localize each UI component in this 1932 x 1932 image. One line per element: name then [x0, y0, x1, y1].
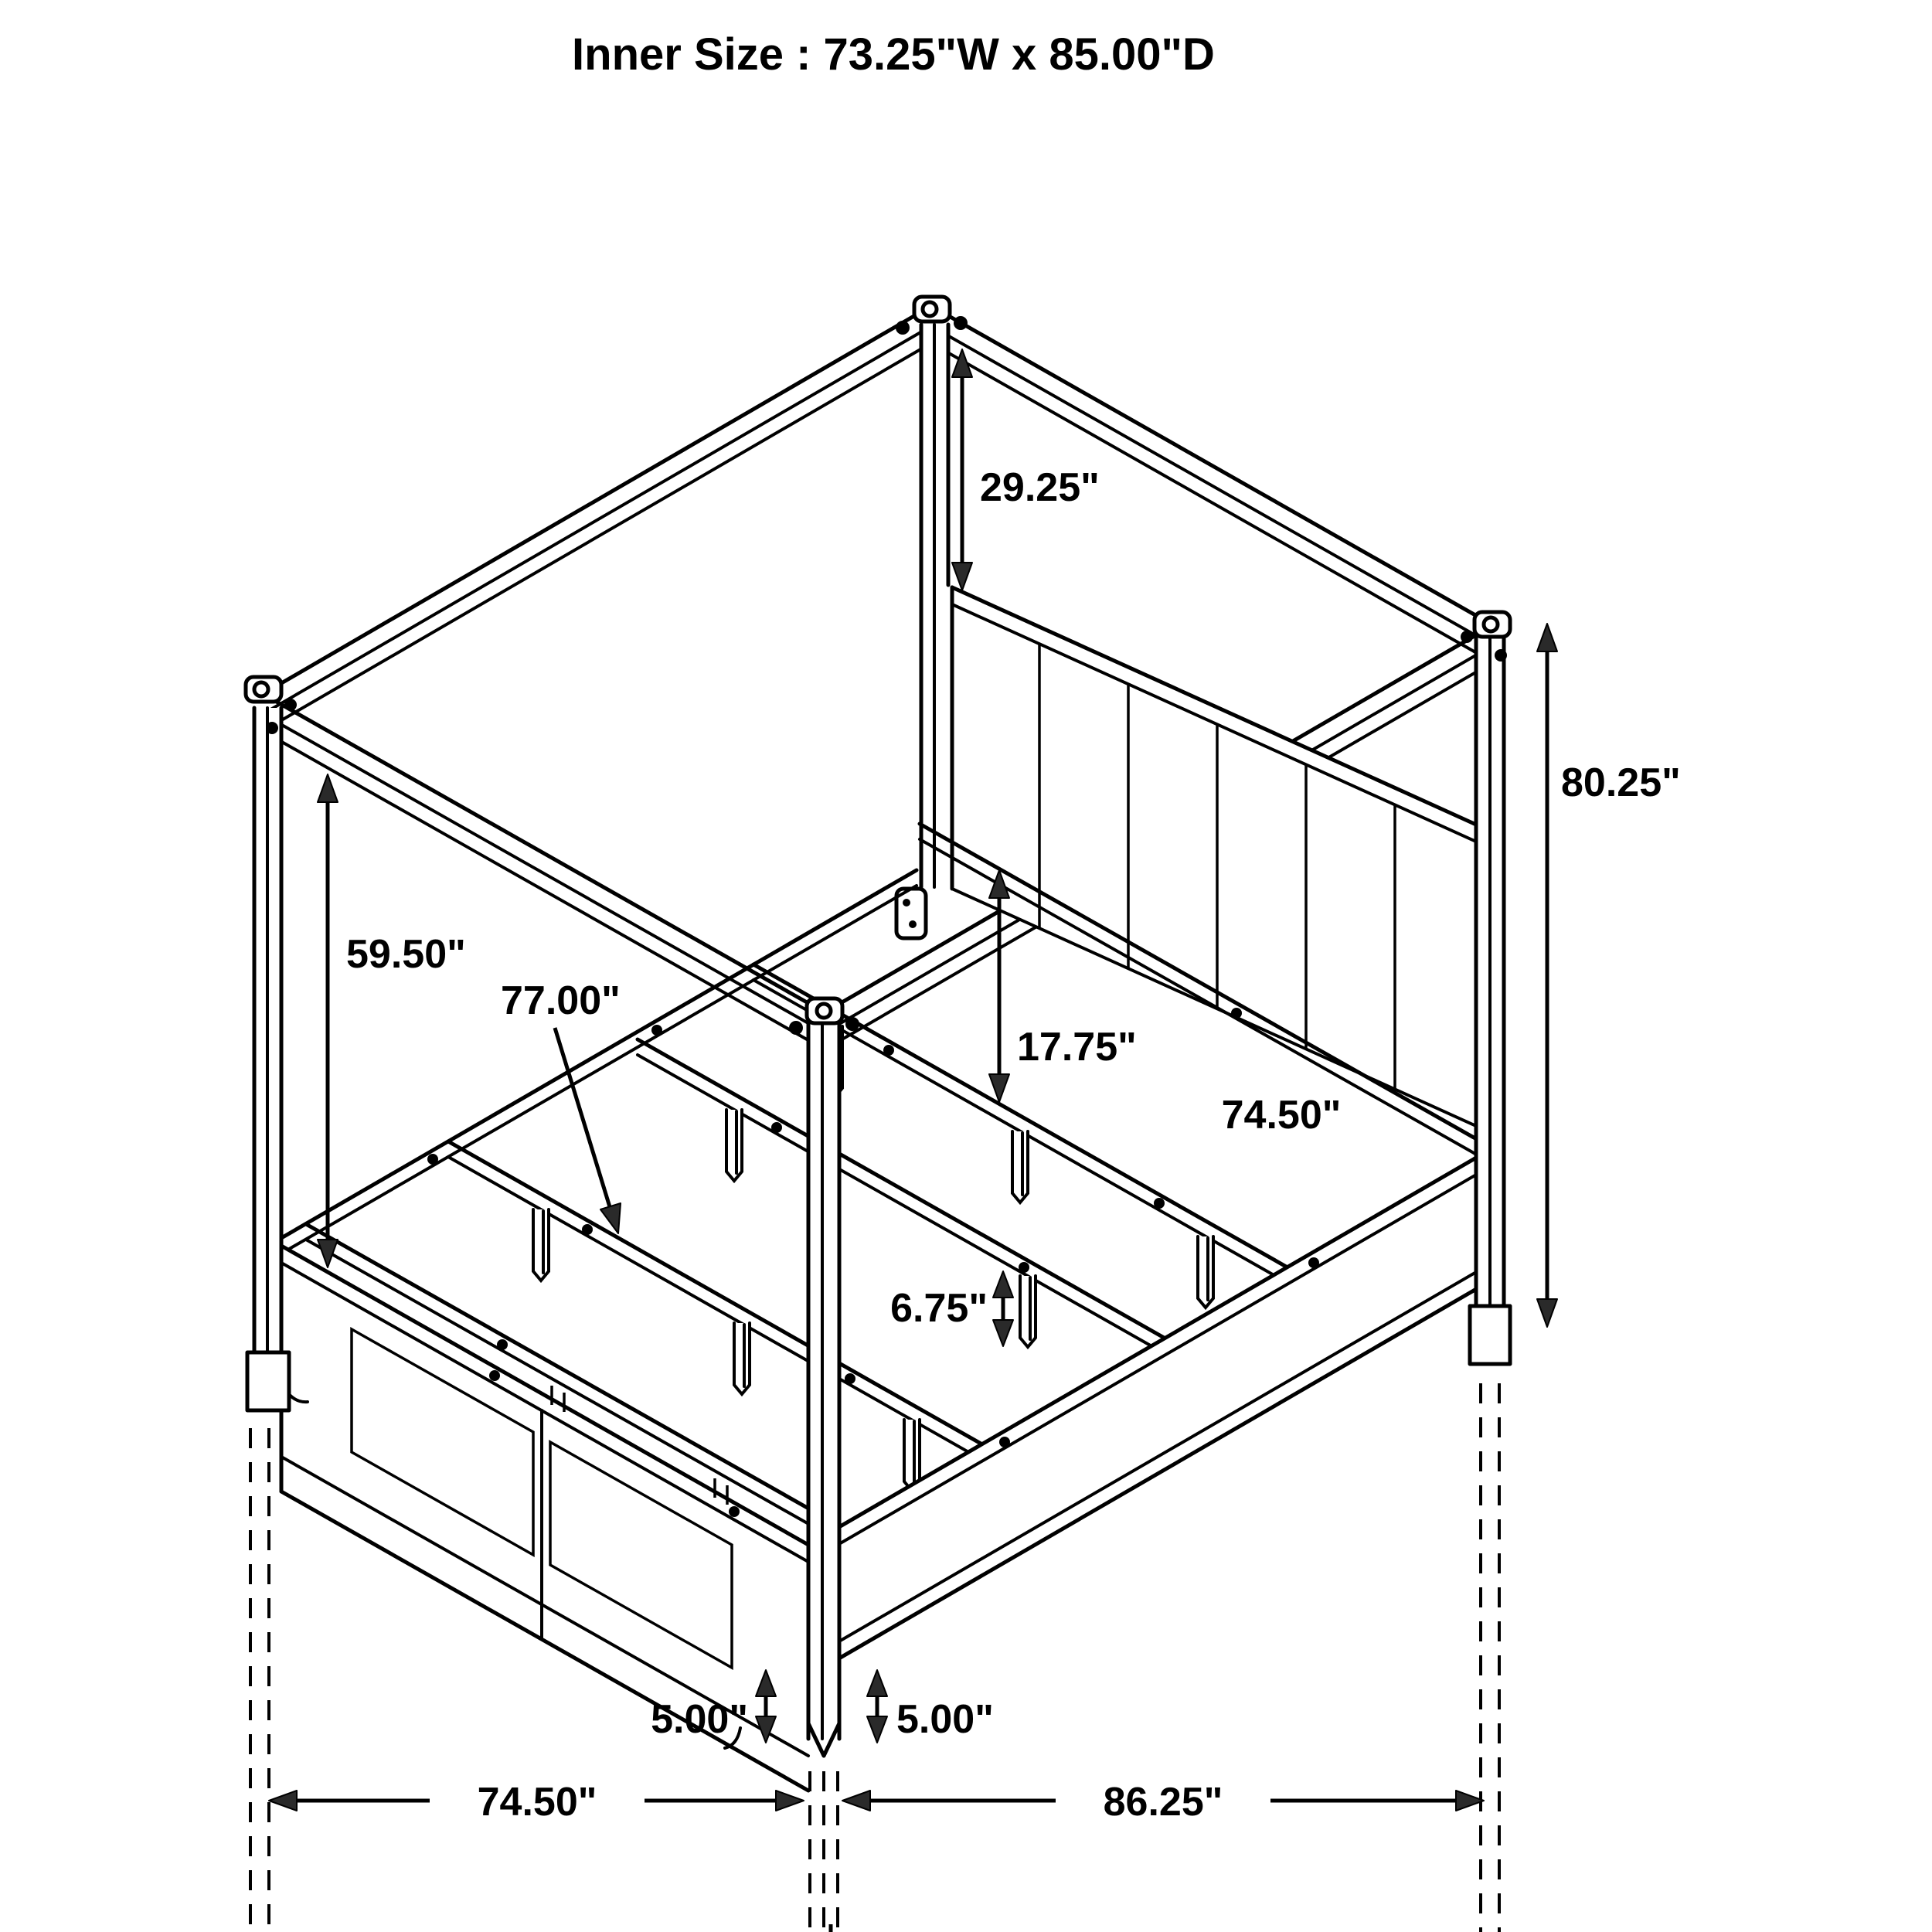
dim-label: 86.25"	[1104, 1780, 1223, 1825]
dim-label: 80.25"	[1561, 760, 1681, 805]
dim-base-depth: 86.25"	[842, 1780, 1484, 1825]
dim-label: 29.25"	[980, 465, 1100, 510]
dim-label: 6.75"	[890, 1286, 988, 1331]
page-title: Inner Size : 73.25"W x 85.00"D	[572, 29, 1215, 80]
dim-label: 77.00"	[501, 978, 621, 1023]
support-leg	[734, 1323, 750, 1394]
support-leg	[533, 1209, 549, 1281]
support-leg	[1012, 1131, 1028, 1202]
front-post	[808, 1022, 839, 1756]
dim-base-width: 74.50"	[269, 1780, 804, 1825]
dim-overall-height: 80.25"	[1537, 624, 1681, 1327]
support-leg	[1020, 1276, 1036, 1347]
dim-headboard-side-length: 74.50"	[1222, 1093, 1342, 1138]
diagram-canvas: 29.25" 59.50" 77.00" 17.75" 74.50" 80.25…	[0, 0, 1932, 1932]
dim-label: 5.00"	[896, 1697, 994, 1742]
right-post-foot	[1470, 1306, 1510, 1364]
dim-post-above-headboard: 29.25"	[952, 349, 1100, 590]
left-post-foot	[247, 1352, 289, 1410]
support-leg	[1198, 1236, 1213, 1308]
bed-dimension-diagram: 29.25" 59.50" 77.00" 17.75" 74.50" 80.25…	[0, 0, 1932, 1932]
rear-post	[921, 325, 948, 887]
left-post	[247, 708, 289, 1410]
dim-label: 17.75"	[1017, 1025, 1137, 1070]
dim-label: 74.50"	[1222, 1093, 1342, 1138]
dim-label: 74.50"	[478, 1780, 597, 1825]
dim-right-foot-height: 5.00"	[867, 1670, 994, 1743]
dim-label: 59.50"	[346, 932, 466, 977]
dim-support-leg-height: 6.75"	[890, 1271, 1013, 1346]
dim-label: 5.00"	[651, 1697, 748, 1742]
right-post	[1470, 635, 1510, 1364]
support-leg	[726, 1110, 742, 1181]
dim-canopy-to-base: 59.50"	[318, 774, 466, 1267]
